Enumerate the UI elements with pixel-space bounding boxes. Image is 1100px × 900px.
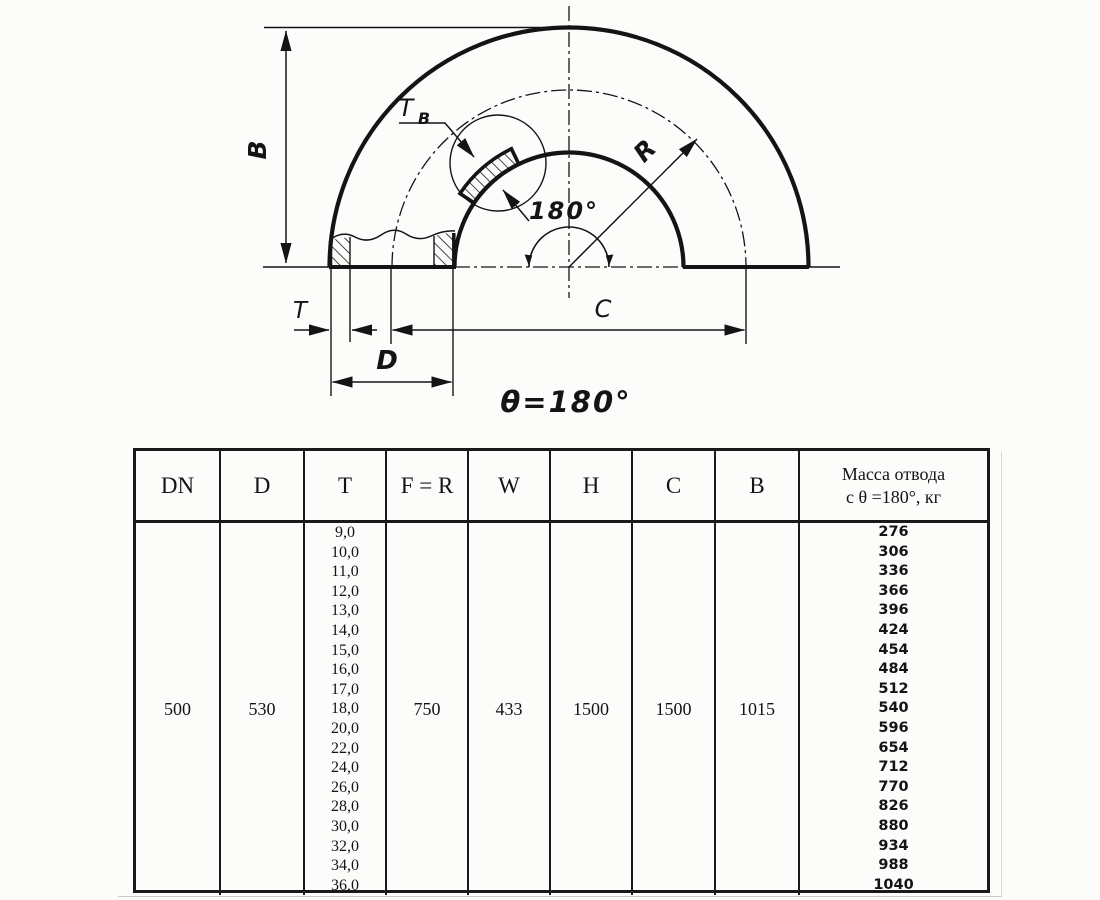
dimension-table: DN D T F = R W H C B Масса отвода с θ =1… bbox=[133, 448, 990, 893]
col-header-dn: DN bbox=[136, 451, 221, 523]
t-value: 28,0 bbox=[331, 797, 359, 817]
mass-value: 770 bbox=[878, 778, 908, 798]
radius-label: R bbox=[628, 134, 662, 168]
mass-value: 454 bbox=[878, 641, 908, 661]
t-wall-label: T bbox=[399, 94, 416, 122]
angle-arrow-right bbox=[606, 255, 614, 267]
t-wall-leader bbox=[399, 123, 474, 157]
cell-fr: 750 bbox=[387, 523, 469, 895]
cell-b: 1015 bbox=[716, 523, 800, 895]
col-header-mass: Масса отвода с θ =180°, кг bbox=[800, 451, 987, 523]
elbow-diagram: T B R 180° B T C D θ=180° bbox=[0, 0, 1100, 444]
t-wall-opposite-arrow bbox=[503, 190, 529, 221]
col-header-fr: F = R bbox=[387, 451, 469, 523]
col-header-c: C bbox=[633, 451, 716, 523]
t-value: 13,0 bbox=[331, 601, 359, 621]
col-header-t: T bbox=[305, 451, 387, 523]
left-wall-hatch bbox=[330, 237, 350, 267]
col-header-d: D bbox=[221, 451, 305, 523]
scan-artifact-horizontal bbox=[118, 896, 1002, 897]
t-wall-sub-label: B bbox=[418, 109, 430, 128]
t-value: 18,0 bbox=[331, 699, 359, 719]
t-value: 9,0 bbox=[335, 523, 355, 543]
col-header-w: W bbox=[469, 451, 551, 523]
cell-dn: 500 bbox=[136, 523, 221, 895]
cell-d: 530 bbox=[221, 523, 305, 895]
t-value: 11,0 bbox=[331, 562, 358, 582]
mass-value: 596 bbox=[878, 719, 908, 739]
mass-header-line2: с θ =180°, кг bbox=[846, 486, 941, 509]
t-value: 34,0 bbox=[331, 856, 359, 876]
mass-value: 306 bbox=[878, 543, 908, 563]
mass-value: 880 bbox=[878, 817, 908, 837]
theta-label: θ=180° bbox=[500, 385, 631, 419]
mass-value: 988 bbox=[878, 856, 908, 876]
d-dim-label: D bbox=[376, 346, 398, 376]
t-value: 16,0 bbox=[331, 660, 359, 680]
mass-value: 540 bbox=[878, 699, 908, 719]
mass-value: 424 bbox=[878, 621, 908, 641]
mass-value: 712 bbox=[878, 758, 908, 778]
mass-value: 826 bbox=[878, 797, 908, 817]
mass-value: 366 bbox=[878, 582, 908, 602]
angle-arrow-left bbox=[525, 255, 533, 267]
right-wall-hatch bbox=[434, 232, 454, 268]
mass-value: 336 bbox=[878, 562, 908, 582]
mass-value: 512 bbox=[878, 680, 908, 700]
mass-value: 934 bbox=[878, 837, 908, 857]
mass-value: 1040 bbox=[873, 876, 913, 896]
t-value: 24,0 bbox=[331, 758, 359, 778]
t-value: 17,0 bbox=[331, 680, 359, 700]
wall-crescent bbox=[460, 149, 519, 203]
mass-value: 276 bbox=[878, 523, 908, 543]
cell-mass-values: 2763063363663964244544845125405966547127… bbox=[800, 523, 987, 895]
mass-value: 396 bbox=[878, 601, 908, 621]
t-dim-label: T bbox=[293, 298, 309, 324]
elbow-drawing-page: T B R 180° B T C D θ=180° bbox=[0, 0, 1100, 900]
t-value: 10,0 bbox=[331, 543, 359, 563]
t-value: 14,0 bbox=[331, 621, 359, 641]
mass-header-line1: Масса отвода bbox=[842, 463, 945, 486]
t-value: 20,0 bbox=[331, 719, 359, 739]
t-value: 36,0 bbox=[331, 876, 359, 896]
col-header-h: H bbox=[551, 451, 633, 523]
c-dim-label: C bbox=[595, 295, 612, 323]
t-value: 32,0 bbox=[331, 837, 359, 857]
t-value: 15,0 bbox=[331, 641, 359, 661]
cell-h: 1500 bbox=[551, 523, 633, 895]
cell-c: 1500 bbox=[633, 523, 716, 895]
t-value: 26,0 bbox=[331, 778, 359, 798]
col-header-b: B bbox=[716, 451, 800, 523]
cell-w: 433 bbox=[469, 523, 551, 895]
mass-value: 484 bbox=[878, 660, 908, 680]
t-value: 22,0 bbox=[331, 739, 359, 759]
t-value: 30,0 bbox=[331, 817, 359, 837]
scan-artifact-vertical bbox=[1001, 452, 1002, 897]
mass-value: 654 bbox=[878, 739, 908, 759]
cell-t-values: 9,010,011,012,013,014,015,016,017,018,02… bbox=[305, 523, 387, 895]
t-value: 12,0 bbox=[331, 582, 359, 602]
b-dim-label: B bbox=[243, 140, 272, 159]
angle-label: 180° bbox=[529, 197, 599, 225]
